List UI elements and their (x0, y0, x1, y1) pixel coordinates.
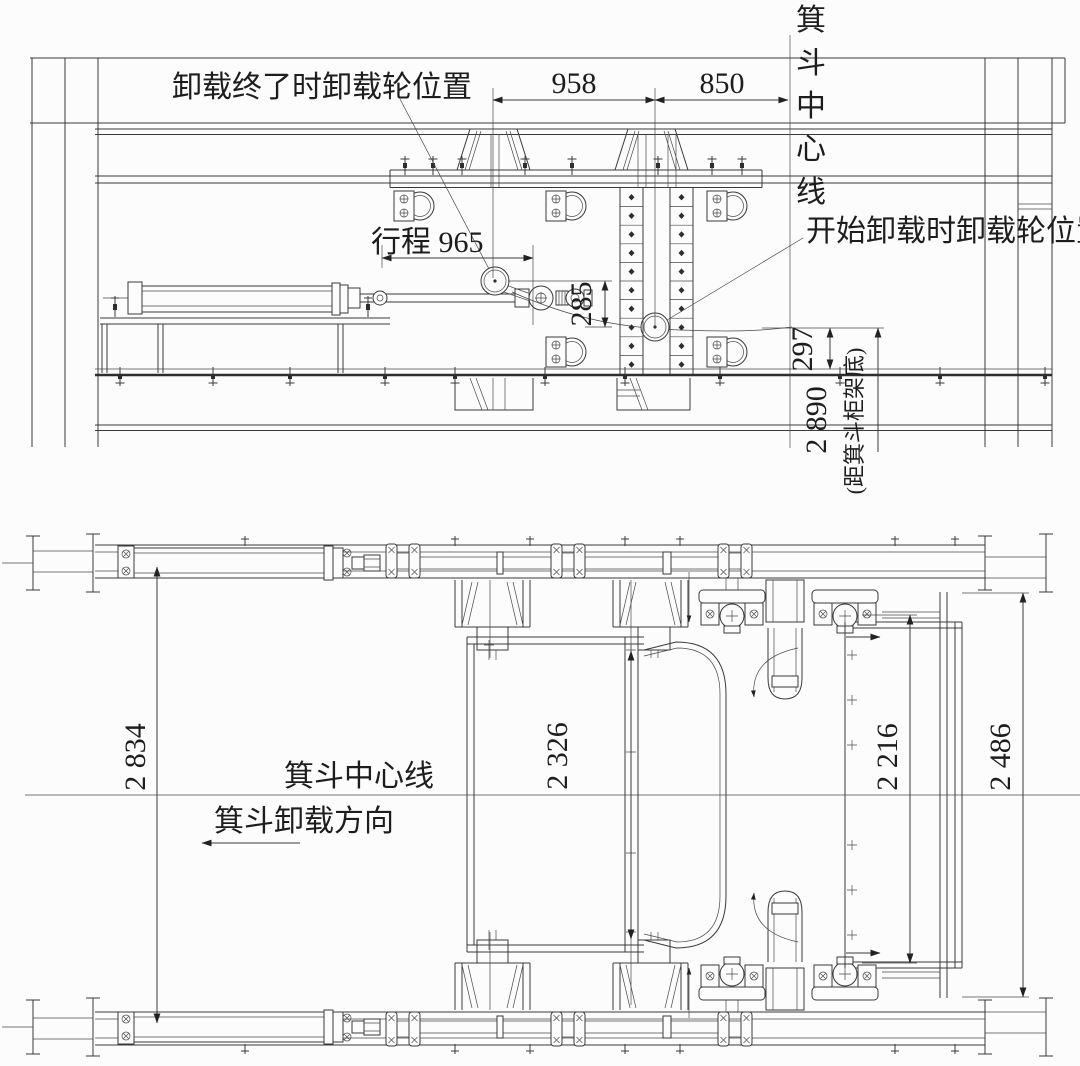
technical-drawing-page: 958 850 行程 965 285 297 2 890 (距箕斗柜架底) 卸载… (0, 0, 1080, 1066)
hydraulic-cylinder-elevation (100, 282, 515, 373)
dimension-2216: 2 216 (862, 615, 917, 963)
label-skip-centerline: 箕斗中心线 (284, 760, 434, 793)
dim-2890-note: (距箕斗柜架底) (842, 348, 867, 495)
dim-285-value: 285 (565, 282, 598, 327)
headframe-structure (30, 58, 1065, 447)
dimension-850: 850 (655, 67, 788, 100)
dim-297-value: 297 (786, 327, 819, 372)
leader-start-position (667, 238, 803, 320)
dim-850-value: 850 (700, 67, 745, 100)
unloading-wheel-end-position (481, 267, 509, 295)
label-unload-direction: 箕斗卸载方向 (214, 805, 394, 838)
label-skip-centerline-vertical: 箕斗中心线 (796, 4, 826, 209)
skip-unloading-drawing: 958 850 行程 965 285 297 2 890 (距箕斗柜架底) 卸载… (0, 0, 1080, 1066)
dim-2890-value: 2 890 (800, 386, 833, 454)
dim-stroke-value: 行程 965 (371, 226, 484, 259)
dim-2486-value: 2 486 (984, 723, 1017, 791)
label-end-position: 卸载终了时卸载轮位置 (172, 71, 472, 104)
dim-2216-value: 2 216 (871, 723, 904, 791)
plan-view: 2 834 2 326 2 216 2 486 箕斗中心线 箕斗卸载方向 (2, 534, 1080, 1056)
unloading-linkage (481, 267, 792, 341)
label-start-position: 开始卸载时卸载轮位置 (806, 215, 1080, 248)
dim-2834-value: 2 834 (119, 723, 152, 791)
dimension-958: 958 (493, 67, 655, 100)
elevation-view: 958 850 行程 965 285 297 2 890 (距箕斗柜架底) 卸载… (30, 4, 1080, 494)
curved-rail-columns (390, 129, 762, 410)
dimension-285: 285 (565, 281, 605, 327)
dim-2326-value: 2 326 (541, 722, 574, 790)
dimension-stroke-965: 行程 965 (371, 226, 533, 259)
skip-body-plan (467, 637, 726, 952)
dim-958-value: 958 (552, 67, 597, 100)
bottom-rail-assembly (2, 930, 1053, 1056)
dimension-297: 297 (786, 327, 830, 372)
top-rail-assembly (2, 534, 1053, 660)
